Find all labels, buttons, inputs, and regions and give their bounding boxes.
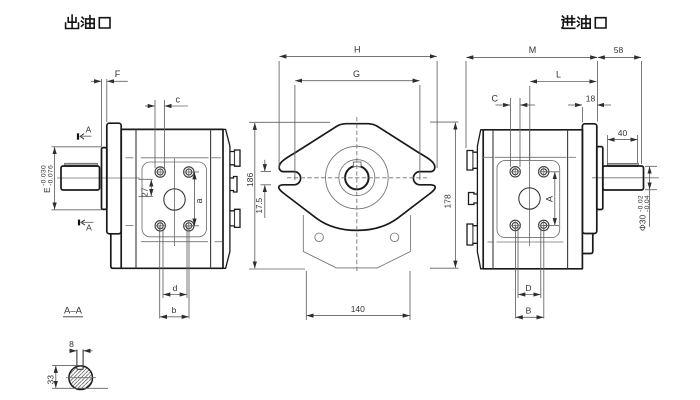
svg-text:A: A bbox=[545, 196, 555, 202]
svg-text:Φ30: Φ30 bbox=[638, 214, 648, 231]
svg-text:140: 140 bbox=[351, 304, 365, 314]
svg-text:c: c bbox=[176, 95, 181, 105]
svg-text:M: M bbox=[529, 45, 537, 55]
svg-text:186: 186 bbox=[245, 173, 255, 187]
svg-text:L: L bbox=[556, 70, 561, 80]
svg-text:58: 58 bbox=[614, 45, 624, 55]
svg-text:178: 178 bbox=[443, 194, 453, 208]
svg-text:E: E bbox=[42, 187, 52, 193]
svg-text:A: A bbox=[86, 223, 92, 233]
svg-text:-0.076: -0.076 bbox=[47, 165, 54, 186]
svg-text:H: H bbox=[354, 45, 361, 55]
svg-text:D: D bbox=[525, 283, 531, 293]
svg-text:b: b bbox=[172, 305, 177, 315]
svg-text:17.5: 17.5 bbox=[255, 197, 264, 213]
svg-text:8: 8 bbox=[69, 339, 74, 349]
svg-text:-0.04: -0.04 bbox=[644, 195, 651, 212]
svg-text:G: G bbox=[353, 69, 360, 79]
svg-text:a: a bbox=[194, 198, 204, 203]
svg-text:d: d bbox=[173, 283, 178, 293]
svg-text:A: A bbox=[86, 125, 92, 135]
svg-text:33: 33 bbox=[46, 375, 56, 385]
svg-text:F: F bbox=[115, 69, 121, 79]
svg-text:27: 27 bbox=[140, 187, 150, 197]
svg-text:18: 18 bbox=[586, 94, 596, 104]
svg-text:C: C bbox=[492, 94, 499, 104]
svg-text:A–A: A–A bbox=[64, 306, 83, 317]
svg-text:B: B bbox=[526, 306, 532, 316]
svg-text:40: 40 bbox=[618, 128, 628, 138]
